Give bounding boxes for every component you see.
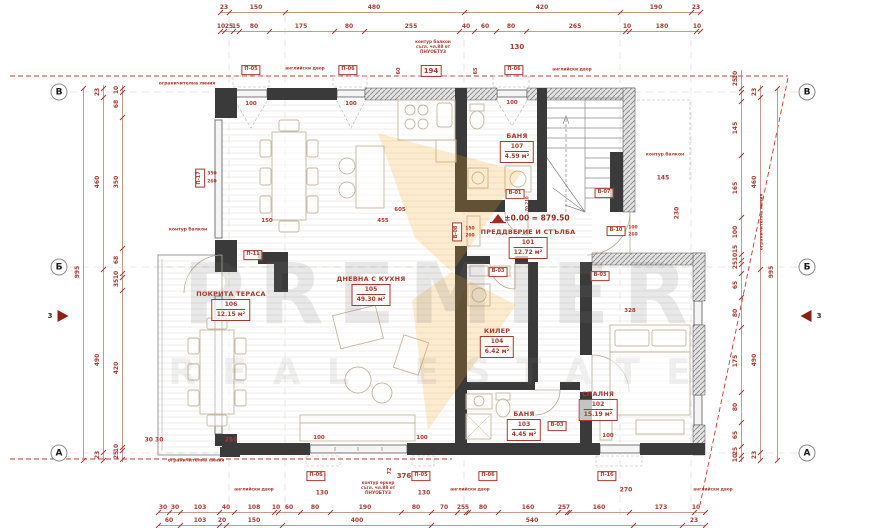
grid-marker-Б: Б bbox=[51, 259, 68, 276]
section-arrow bbox=[801, 310, 812, 322]
grid-markers-layer: ВБАВБА33 bbox=[0, 0, 885, 528]
section-arrow bbox=[58, 310, 69, 322]
section-label: 3 bbox=[48, 312, 53, 320]
grid-marker-В: В bbox=[799, 84, 816, 101]
grid-marker-А: А bbox=[799, 445, 816, 462]
floor-plan-canvas: PREMIER REAL ESTATE 23150480420190231025… bbox=[0, 0, 885, 528]
section-label: 3 bbox=[817, 312, 822, 320]
grid-marker-Б: Б bbox=[799, 259, 816, 276]
grid-marker-А: А bbox=[51, 445, 68, 462]
grid-marker-В: В bbox=[51, 84, 68, 101]
